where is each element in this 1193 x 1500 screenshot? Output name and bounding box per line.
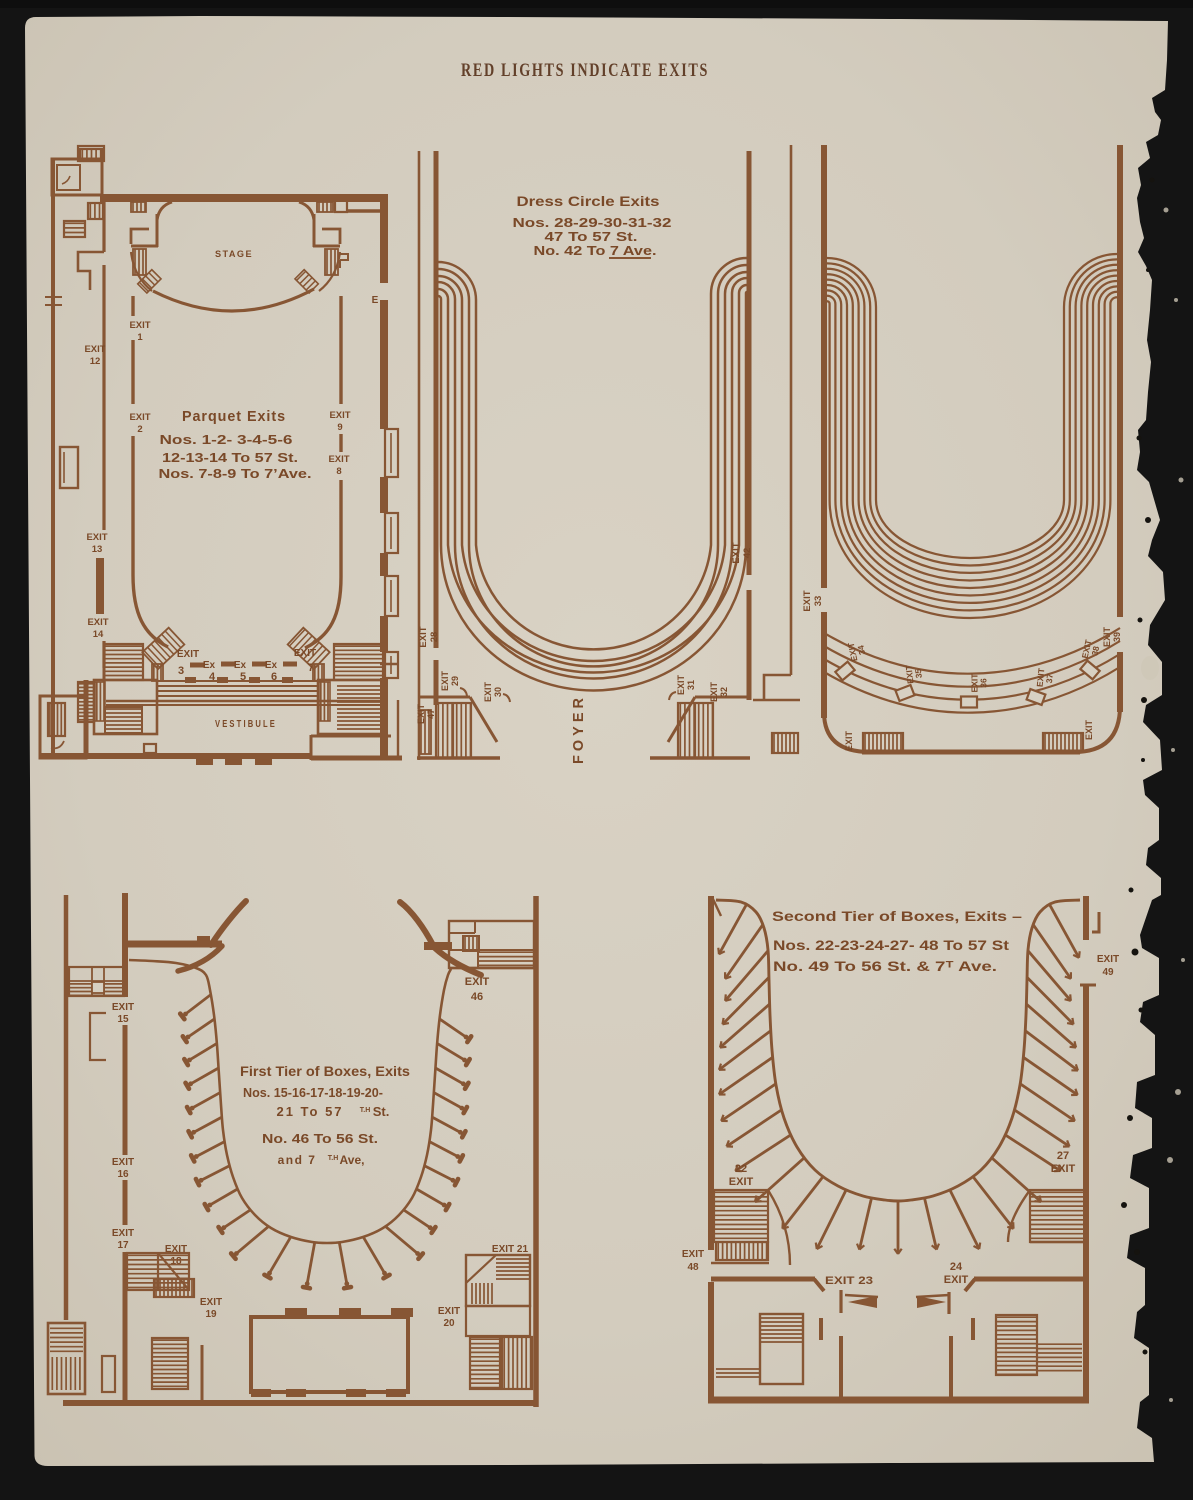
svg-text:29: 29 [450,676,460,686]
svg-text:FOYER: FOYER [571,694,587,764]
svg-text:46: 46 [471,991,483,1003]
svg-text:28: 28 [429,632,440,643]
svg-text:No. 46 To 56 St.: No. 46 To 56 St. [262,1131,378,1146]
svg-text:EXIT 23: EXIT 23 [825,1275,873,1287]
svg-text:42: 42 [742,548,753,559]
svg-text:EXIT: EXIT [729,1176,754,1188]
svg-text:19: 19 [205,1309,217,1320]
svg-text:EXIT: EXIT [438,1306,460,1317]
svg-text:9: 9 [337,422,342,433]
svg-text:3: 3 [178,665,184,677]
svg-text:Ex: Ex [203,660,216,671]
svg-text:EXIT: EXIT [416,704,426,725]
svg-text:EXIT: EXIT [177,649,199,660]
svg-text:EXIT: EXIT [418,626,429,647]
svg-text:EXIT: EXIT [329,410,350,421]
svg-text:Second Tier of Boxes, Exits: Second Tier of Boxes, Exits – [772,908,1022,924]
svg-text:T.H: T.H [328,1155,339,1162]
svg-text:Nos. 15-16-17-18-19-20-: Nos. 15-16-17-18-19-20- [243,1085,383,1100]
svg-text:Dress Circle Exits: Dress Circle Exits [517,193,660,209]
svg-text:EXIT: EXIT [483,682,493,703]
svg-text:EXIT: EXIT [84,344,105,355]
svg-text:Ex: Ex [265,660,278,671]
svg-text:No. 42 To 7 Ave.: No. 42 To 7 Ave. [534,243,657,258]
svg-text:St.: St. [373,1104,390,1119]
svg-text:EXIT: EXIT [129,320,150,331]
svg-text:20: 20 [443,1318,455,1329]
svg-text:48: 48 [687,1262,699,1273]
svg-text:EXIT: EXIT [200,1297,222,1308]
svg-text:30: 30 [493,687,503,697]
svg-text:RED LIGHTS INDICATE EXITS: RED LIGHTS INDICATE EXITS [461,60,709,81]
svg-text:EXIT: EXIT [86,532,107,543]
svg-text:EXIT: EXIT [731,542,742,563]
svg-text:Nos. 1-2- 3-4-5-6: Nos. 1-2- 3-4-5-6 [160,432,293,447]
svg-text:First Tier of Boxes, Exits: First Tier of Boxes, Exits [240,1063,410,1079]
svg-text:35: 35 [913,668,924,679]
svg-text:32: 32 [719,687,729,697]
svg-text:and 7: and 7 [278,1153,317,1167]
svg-text:2: 2 [137,424,142,435]
svg-text:T.H: T.H [360,1107,371,1114]
svg-text:EXIT: EXIT [1097,954,1119,965]
svg-text:Ave,: Ave, [340,1153,365,1167]
svg-text:EXIT: EXIT [709,682,719,703]
svg-text:EXIT: EXIT [844,731,854,752]
svg-text:13: 13 [92,544,103,555]
svg-text:EXIT: EXIT [1051,1163,1076,1175]
svg-text:EXIT 21: EXIT 21 [492,1244,529,1255]
svg-text:17: 17 [117,1240,129,1251]
svg-text:24: 24 [950,1261,963,1273]
svg-text:EXIT: EXIT [1084,720,1094,741]
svg-text:12-13-14 To 57 St.: 12-13-14 To 57 St. [162,450,298,465]
svg-text:14: 14 [93,629,104,640]
svg-text:27: 27 [1057,1150,1069,1162]
svg-text:Nos. 28-29-30-31-32: Nos. 28-29-30-31-32 [513,215,672,230]
svg-text:39: 39 [1112,632,1122,642]
svg-text:EXIT: EXIT [294,648,316,659]
svg-text:EXIT: EXIT [465,976,490,988]
svg-text:VESTIBULE: VESTIBULE [215,718,277,730]
svg-text:1: 1 [137,332,143,343]
svg-text:EXIT: EXIT [87,617,108,628]
svg-text:37: 37 [1044,673,1055,684]
svg-text:12: 12 [90,356,101,367]
svg-text:EXIT: EXIT [802,590,813,611]
svg-text:Parquet Exits: Parquet Exits [182,408,286,425]
svg-text:EXIT: EXIT [328,454,349,465]
svg-text:15: 15 [117,1014,129,1025]
svg-text:16: 16 [117,1169,129,1180]
svg-text:36: 36 [978,678,988,688]
svg-text:EXIT: EXIT [682,1249,704,1260]
svg-text:47 To 57 St.: 47 To 57 St. [545,229,638,244]
svg-text:EXIT: EXIT [129,412,150,423]
svg-text:Nos. 22-23-24-27- 48 To 57 St: Nos. 22-23-24-27- 48 To 57 St [773,938,1010,953]
svg-text:Nos. 7-8-9 To 7’Ave.: Nos. 7-8-9 To 7’Ave. [159,466,312,481]
svg-text:EXIT: EXIT [112,1002,134,1013]
svg-text:EXIT: EXIT [112,1157,134,1168]
svg-text:E: E [372,295,379,306]
svg-text:8: 8 [336,466,341,477]
svg-text:31: 31 [686,680,696,690]
svg-text:47: 47 [426,709,436,719]
svg-text:EXIT: EXIT [676,675,686,696]
svg-text:EXIT: EXIT [944,1274,969,1286]
svg-text:EXIT: EXIT [440,671,450,692]
svg-text:Ex: Ex [234,660,247,671]
svg-text:STAGE: STAGE [215,249,253,260]
svg-text:49: 49 [1102,967,1114,978]
svg-text:22: 22 [735,1163,747,1175]
svg-text:21 To 57: 21 To 57 [276,1104,343,1119]
svg-text:No. 49 To 56 St. & 7ᵀ Ave.: No. 49 To 56 St. & 7ᵀ Ave. [773,959,997,974]
svg-text:EXIT: EXIT [112,1228,134,1239]
svg-text:33: 33 [813,596,824,607]
